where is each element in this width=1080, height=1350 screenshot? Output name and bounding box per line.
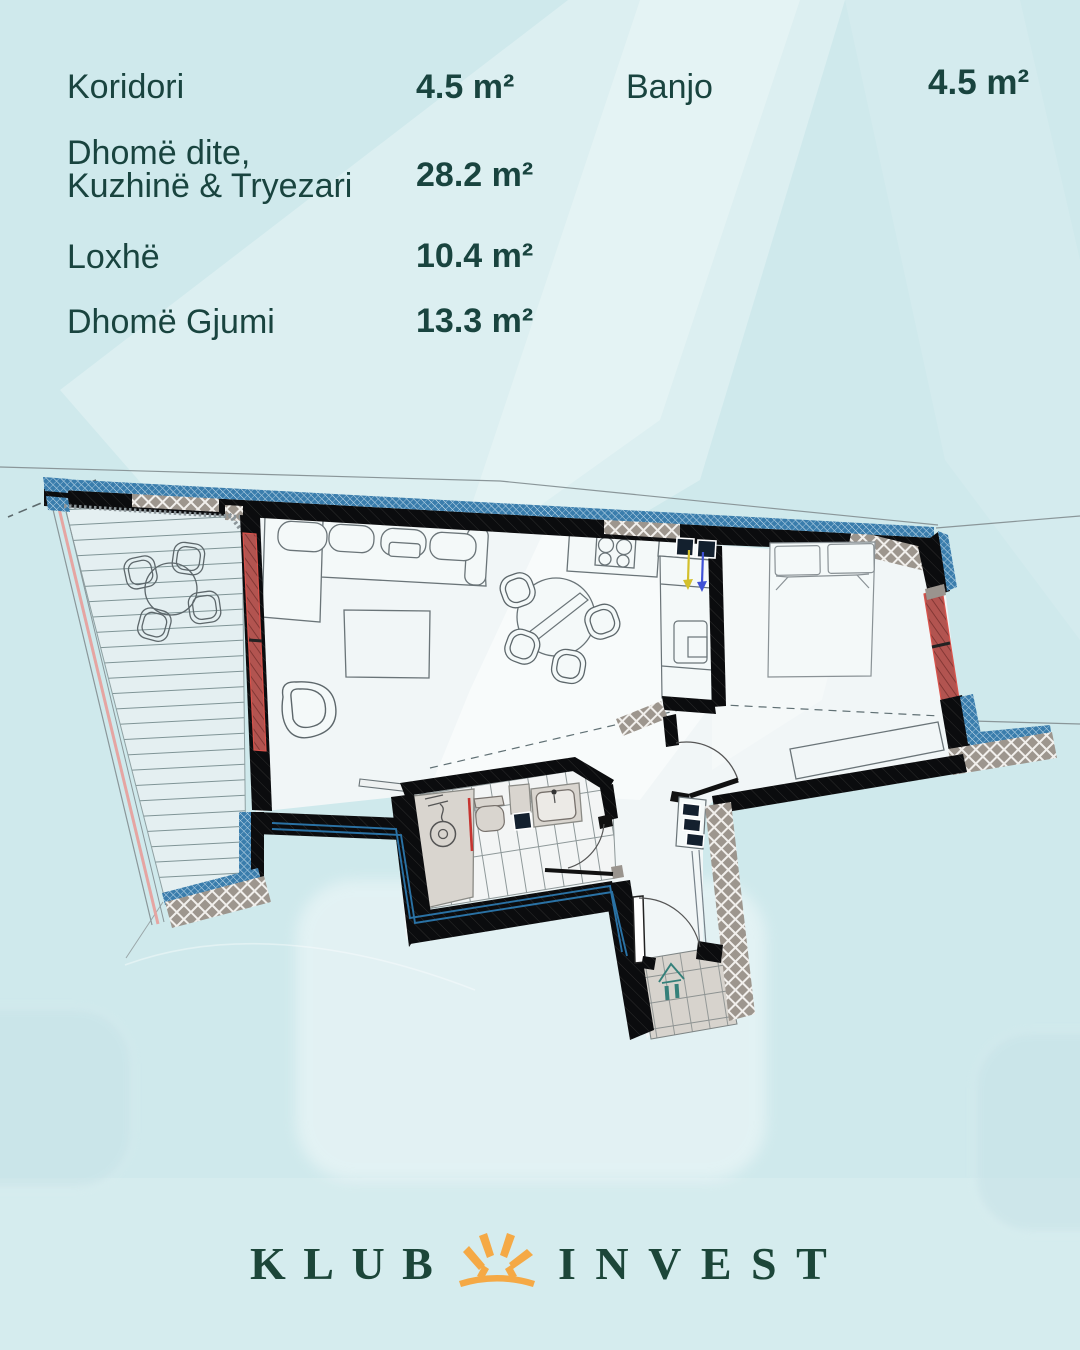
svg-text:Kuzhinë & Tryezari: Kuzhinë & Tryezari <box>67 167 352 205</box>
svg-text:Banjo: Banjo <box>626 68 713 106</box>
svg-text:Dhomë Gjumi: Dhomë Gjumi <box>67 303 275 341</box>
svg-text:4.5 m²: 4.5 m² <box>928 63 1029 102</box>
svg-text:INVEST: INVEST <box>558 1238 846 1289</box>
svg-text:13.3 m²: 13.3 m² <box>416 302 533 340</box>
svg-text:KLUB: KLUB <box>250 1238 450 1289</box>
svg-text:10.4 m²: 10.4 m² <box>416 237 533 275</box>
svg-text:Loxhë: Loxhë <box>67 238 160 276</box>
svg-text:Koridori: Koridori <box>67 68 184 106</box>
svg-text:4.5 m²: 4.5 m² <box>416 68 514 106</box>
svg-text:28.2 m²: 28.2 m² <box>416 156 533 194</box>
